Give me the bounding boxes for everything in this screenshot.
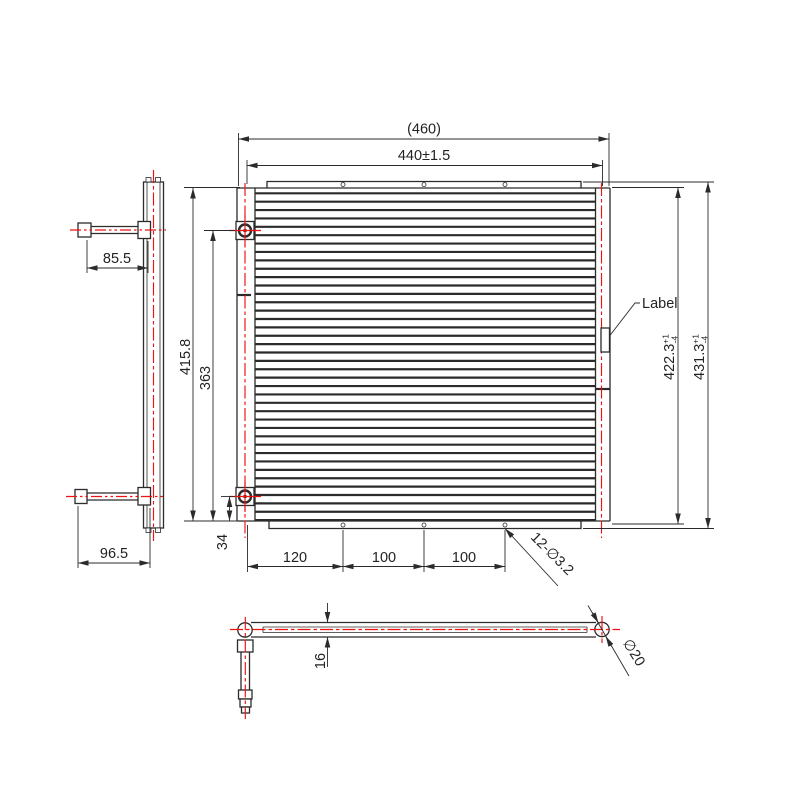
dim-overall-width: (460) bbox=[407, 122, 441, 138]
side-bottom-tube bbox=[66, 488, 166, 506]
label-plate bbox=[601, 328, 610, 352]
mount-hole bbox=[341, 523, 345, 527]
top-cap-tab bbox=[146, 178, 151, 183]
top-cap-tab bbox=[156, 178, 161, 183]
dim-tube-height: 16 bbox=[313, 653, 329, 669]
mount-hole bbox=[503, 183, 507, 187]
dim-height-overall: 431.3+1-4 bbox=[691, 334, 710, 380]
dim-hole-pitch-2: 100 bbox=[372, 550, 396, 566]
dim-port-bottom-offset: 34 bbox=[215, 534, 231, 550]
dim-top-tube-length: 85.5 bbox=[103, 251, 131, 267]
dim-core-height: 415.8 bbox=[178, 339, 194, 375]
dim-hole-pitch-1: 120 bbox=[283, 550, 307, 566]
drawing-sheet: (460) 440±1.5 85.5 96.5 415.8 363 34 bbox=[0, 0, 800, 800]
mount-hole bbox=[341, 183, 345, 187]
mount-hole bbox=[422, 183, 426, 187]
fin-tubes bbox=[255, 193, 596, 520]
main-view bbox=[229, 182, 610, 539]
dim-height-to-plate: 422.3+1-4 bbox=[661, 334, 680, 380]
mount-hole bbox=[422, 523, 426, 527]
dim-tube-diameter: ∅20 bbox=[619, 636, 648, 669]
side-view bbox=[66, 170, 166, 541]
label-callout: Label bbox=[642, 296, 677, 312]
dim-hole-pitch-3: 100 bbox=[452, 550, 476, 566]
mount-hole bbox=[503, 523, 507, 527]
dimensions: (460) 440±1.5 85.5 96.5 415.8 363 34 bbox=[78, 122, 714, 677]
dim-mount-holes: 12-∅3.2 bbox=[527, 530, 576, 579]
condenser-technical-drawing: (460) 440±1.5 85.5 96.5 415.8 363 34 bbox=[0, 0, 800, 800]
bottom-cap-tab bbox=[156, 528, 161, 533]
bottom-view bbox=[230, 616, 620, 719]
dim-port-span: 363 bbox=[198, 366, 214, 390]
dim-mount-width: 440±1.5 bbox=[398, 148, 450, 164]
dim-bottom-tube-length: 96.5 bbox=[100, 546, 128, 562]
